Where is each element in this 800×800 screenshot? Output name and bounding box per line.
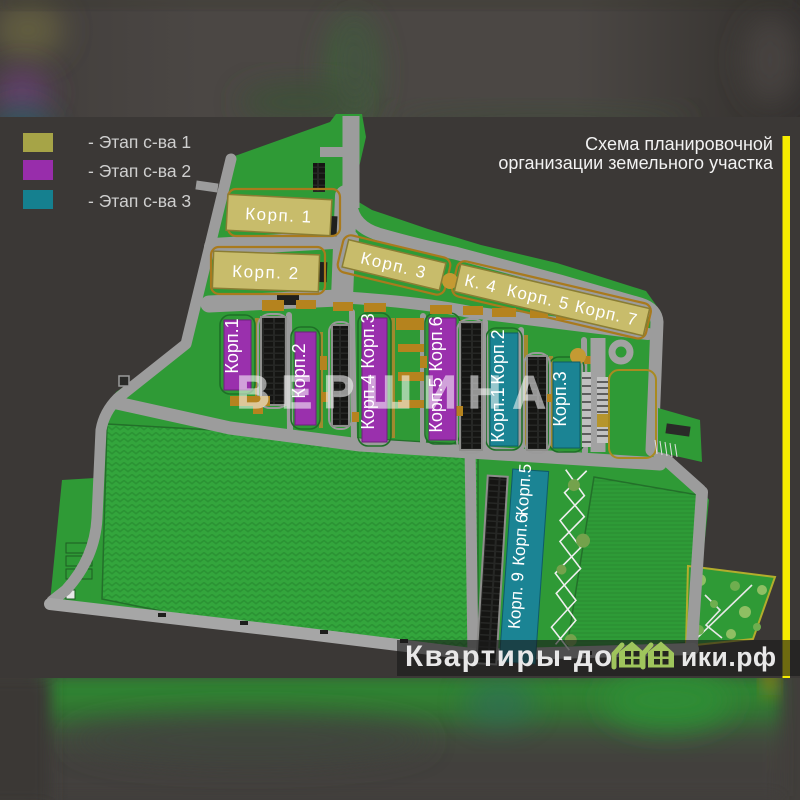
svg-text:Квартиры-до: Квартиры-до: [405, 640, 614, 673]
svg-text:Корп.3: Корп.3: [358, 313, 378, 368]
svg-text:Корп. 2: Корп. 2: [232, 262, 300, 283]
svg-text:ВЕРШИНА: ВЕРШИНА: [237, 366, 558, 418]
svg-text:Корп.6: Корп.6: [509, 513, 532, 566]
svg-text:Корп.6: Корп.6: [426, 316, 446, 371]
svg-text:ики.рф: ики.рф: [681, 642, 777, 672]
svg-text:Корп.5: Корп.5: [513, 463, 536, 516]
svg-text:Корп. 1: Корп. 1: [245, 204, 313, 227]
svg-text:Корп. 9: Корп. 9: [505, 571, 528, 629]
